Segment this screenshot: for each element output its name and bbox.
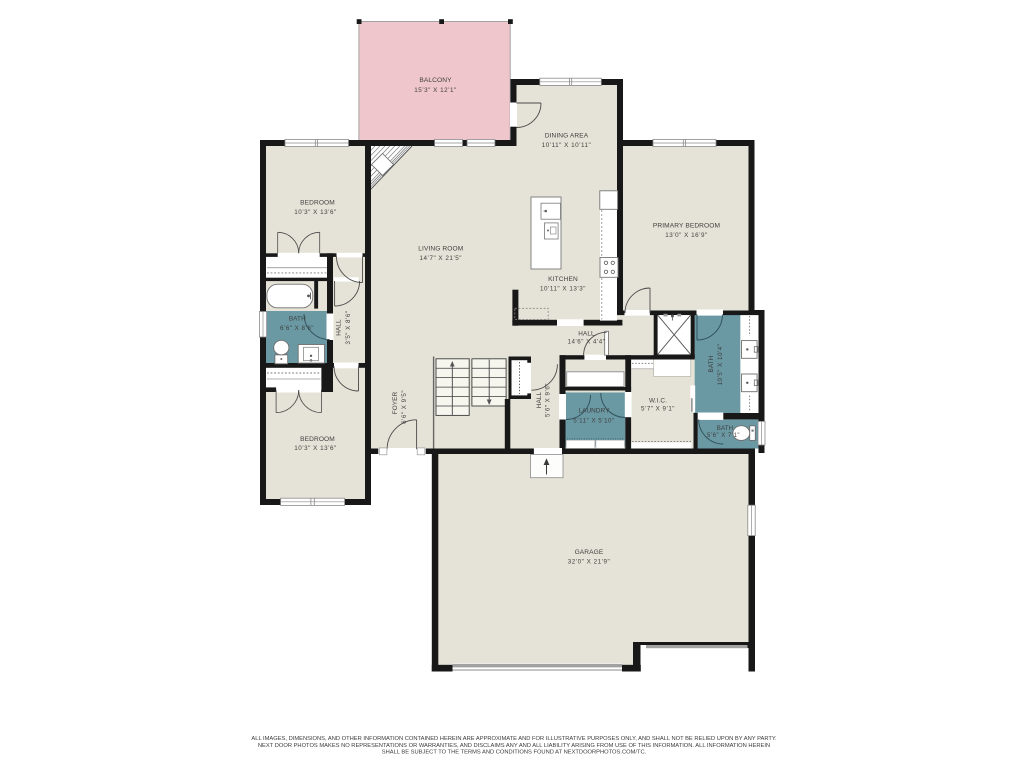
svg-text:BATH: BATH <box>708 355 715 372</box>
svg-text:14’7" X 21’5": 14’7" X 21’5" <box>420 255 462 262</box>
svg-text:GARAGE: GARAGE <box>575 549 604 556</box>
svg-text:BALCONY: BALCONY <box>419 77 452 84</box>
svg-text:10’3" X 13’6": 10’3" X 13’6" <box>294 209 336 216</box>
svg-text:10’5" X 10’4": 10’5" X 10’4" <box>717 344 724 386</box>
svg-text:BEDROOM: BEDROOM <box>300 200 335 207</box>
svg-text:KITCHEN: KITCHEN <box>548 276 578 283</box>
svg-text:HALL: HALL <box>578 330 595 337</box>
svg-text:HALL: HALL <box>536 391 543 408</box>
svg-text:5’7" X 9’1": 5’7" X 9’1" <box>641 406 675 413</box>
svg-text:W.I.C.: W.I.C. <box>649 397 667 404</box>
svg-text:5’6" X 7’1": 5’6" X 7’1" <box>707 433 740 439</box>
svg-text:BATH: BATH <box>717 425 733 432</box>
svg-text:14’6" X 4’4": 14’6" X 4’4" <box>568 338 606 345</box>
svg-text:5’11" X 5’10": 5’11" X 5’10" <box>573 418 614 425</box>
svg-text:32’0" X 21’9": 32’0" X 21’9" <box>568 559 610 566</box>
svg-text:BEDROOM: BEDROOM <box>300 436 335 443</box>
svg-text:13’0" X 16’9": 13’0" X 16’9" <box>665 232 707 239</box>
svg-text:10’11" X 10’11": 10’11" X 10’11" <box>542 142 592 149</box>
svg-text:ALL IMAGES, DIMENSIONS, AND OT: ALL IMAGES, DIMENSIONS, AND OTHER INFORM… <box>251 736 777 742</box>
svg-text:10’3" X 13’6": 10’3" X 13’6" <box>294 445 336 452</box>
svg-text:SHALL BE SUBJECT TO THE TERMS: SHALL BE SUBJECT TO THE TERMS AND CONDIT… <box>382 749 647 755</box>
svg-text:LAUNDRY: LAUNDRY <box>578 407 610 414</box>
svg-text:15’3" X 12’1": 15’3" X 12’1" <box>414 87 456 94</box>
svg-text:FOYER: FOYER <box>392 391 399 414</box>
svg-text:NEXT DOOR PHOTOS MAKES NO REPR: NEXT DOOR PHOTOS MAKES NO REPRESENTATION… <box>258 743 770 749</box>
svg-text:HALL: HALL <box>336 319 343 336</box>
svg-text:10’11" X 13’3": 10’11" X 13’3" <box>540 285 586 292</box>
svg-text:6’6" X 9’5": 6’6" X 9’5" <box>401 390 408 424</box>
svg-text:3’5" X 8’6": 3’5" X 8’6" <box>345 311 352 345</box>
svg-text:DINING AREA: DINING AREA <box>545 133 589 140</box>
svg-text:LIVING ROOM: LIVING ROOM <box>418 246 463 253</box>
svg-text:6’6" X 8’6": 6’6" X 8’6" <box>280 325 314 332</box>
svg-text:5’6" X 9’6": 5’6" X 9’6" <box>545 383 552 417</box>
svg-text:BATH: BATH <box>289 316 306 323</box>
svg-text:PRIMARY BEDROOM: PRIMARY BEDROOM <box>653 223 720 230</box>
